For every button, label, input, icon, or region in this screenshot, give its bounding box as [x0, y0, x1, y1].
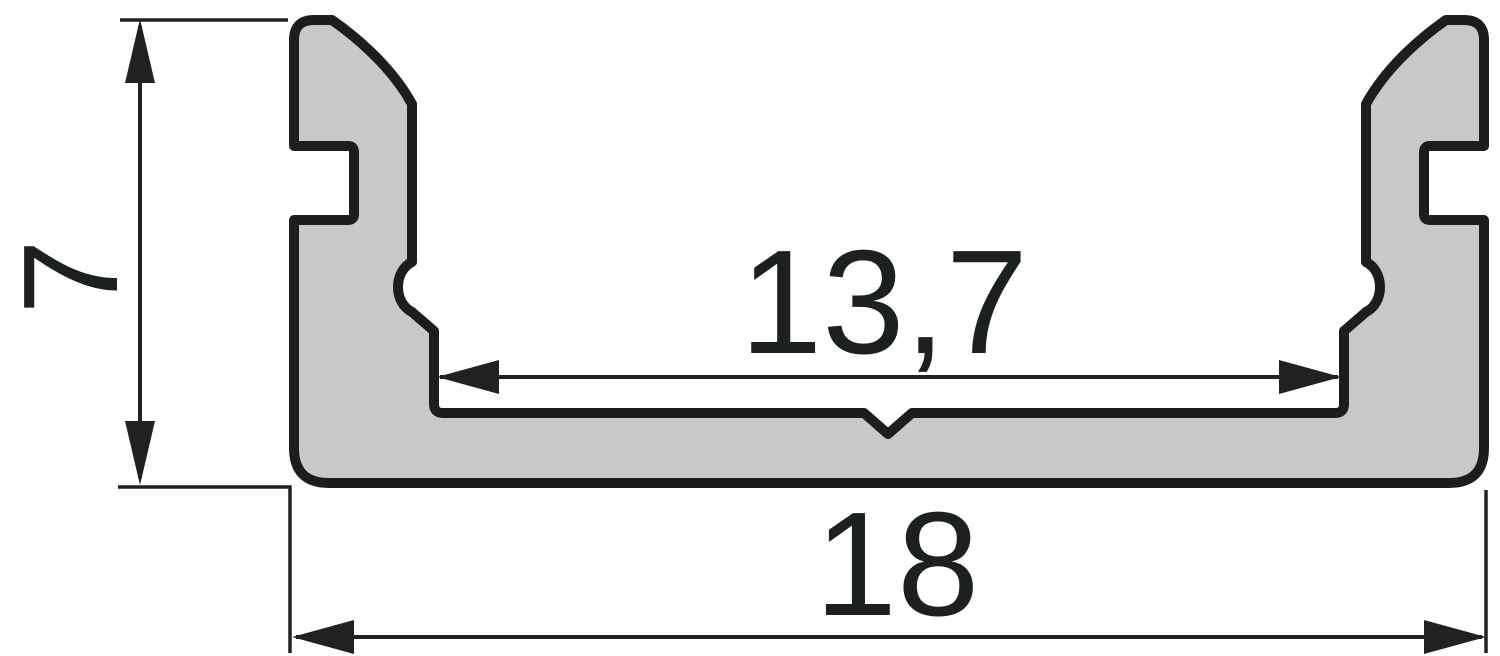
outer-width-arrow-right-icon [1424, 620, 1486, 654]
height-bottom-extension-line [118, 487, 290, 653]
inner-width-dimension: 13,7 [437, 220, 1341, 394]
profile-dimension-drawing: 7 13,7 18 [0, 0, 1500, 656]
inner-width-dimension-label: 13,7 [740, 220, 1028, 385]
outer-width-arrow-left-icon [292, 620, 354, 654]
height-arrow-down-icon [125, 421, 155, 485]
height-dimension-label: 7 [0, 239, 146, 314]
height-arrow-up-icon [125, 19, 155, 83]
technical-drawing-canvas: 7 13,7 18 [0, 0, 1500, 656]
outer-width-dimension-label: 18 [815, 482, 980, 647]
inner-width-arrow-right-icon [1279, 360, 1341, 394]
inner-width-arrow-left-icon [437, 360, 499, 394]
outer-width-dimension: 18 [292, 482, 1486, 654]
height-dimension: 7 [0, 19, 290, 653]
